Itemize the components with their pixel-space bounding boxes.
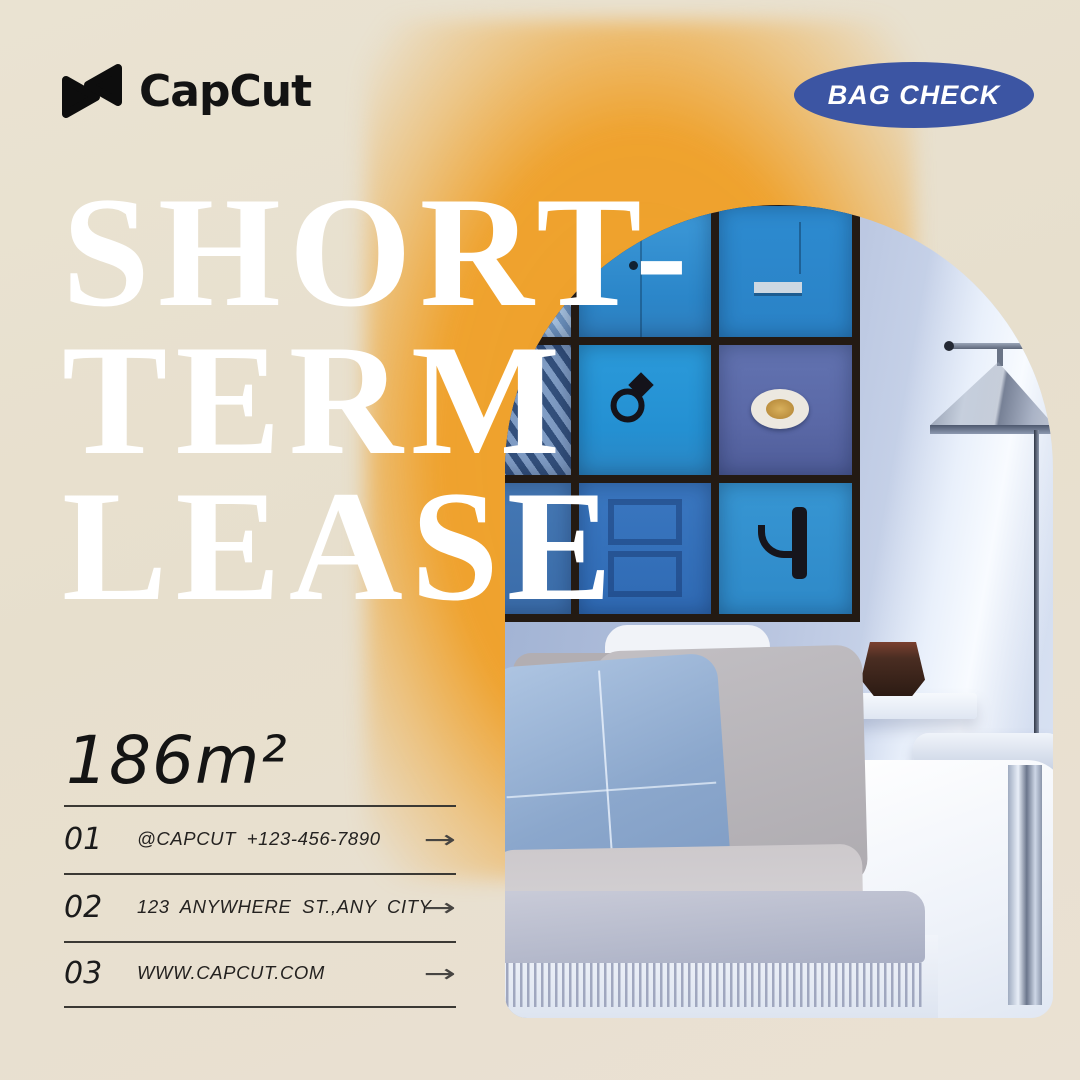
contact-row-website[interactable]: 03 WWW.CAPCUT.COM → [64, 939, 456, 1007]
row-index: 03 [64, 956, 137, 991]
headline-line-1: SHORT- [62, 174, 696, 332]
row-label: 123 ANYWHERE ST.,ANY CITY [137, 896, 435, 918]
bag-check-badge[interactable]: BAG CHECK [794, 62, 1034, 128]
row-label: WWW.CAPCUT.COM [137, 962, 435, 984]
capcut-logo-icon [60, 62, 124, 120]
poster-canvas: CapCut BAG CHECK [0, 0, 1080, 1080]
badge-label: BAG CHECK [828, 80, 1001, 111]
contact-row-address[interactable]: 02 123 ANYWHERE ST.,ANY CITY → [64, 873, 456, 941]
door-emblem [751, 389, 809, 429]
floor-lamp-pole [1034, 430, 1039, 775]
door-handle [792, 507, 807, 579]
floor-lamp-arm [948, 343, 1040, 349]
door-knocker [628, 372, 653, 397]
chrome-lamp-leg [1008, 765, 1042, 1005]
row-index: 01 [64, 822, 137, 857]
capcut-wordmark: CapCut [139, 66, 311, 117]
door-tile [719, 206, 852, 337]
arrow-right-icon: → [424, 959, 456, 988]
headline-line-3: LEASE [62, 468, 620, 626]
door-tile [719, 483, 852, 614]
arrow-right-icon: → [424, 825, 456, 854]
dark-vase [861, 642, 925, 696]
headline-line-2: TERM [62, 322, 568, 480]
door-tile [579, 345, 712, 476]
row-label: @CAPCUT +123-456-7890 [137, 828, 435, 850]
row-index: 02 [64, 890, 137, 925]
contact-row-phone[interactable]: 01 @CAPCUT +123-456-7890 → [64, 805, 456, 873]
area-size-label: 186m² [66, 722, 288, 799]
capcut-logo: CapCut [60, 62, 311, 120]
fringed-blanket [505, 891, 925, 963]
arrow-right-icon: → [424, 893, 456, 922]
door-tile [719, 345, 852, 476]
